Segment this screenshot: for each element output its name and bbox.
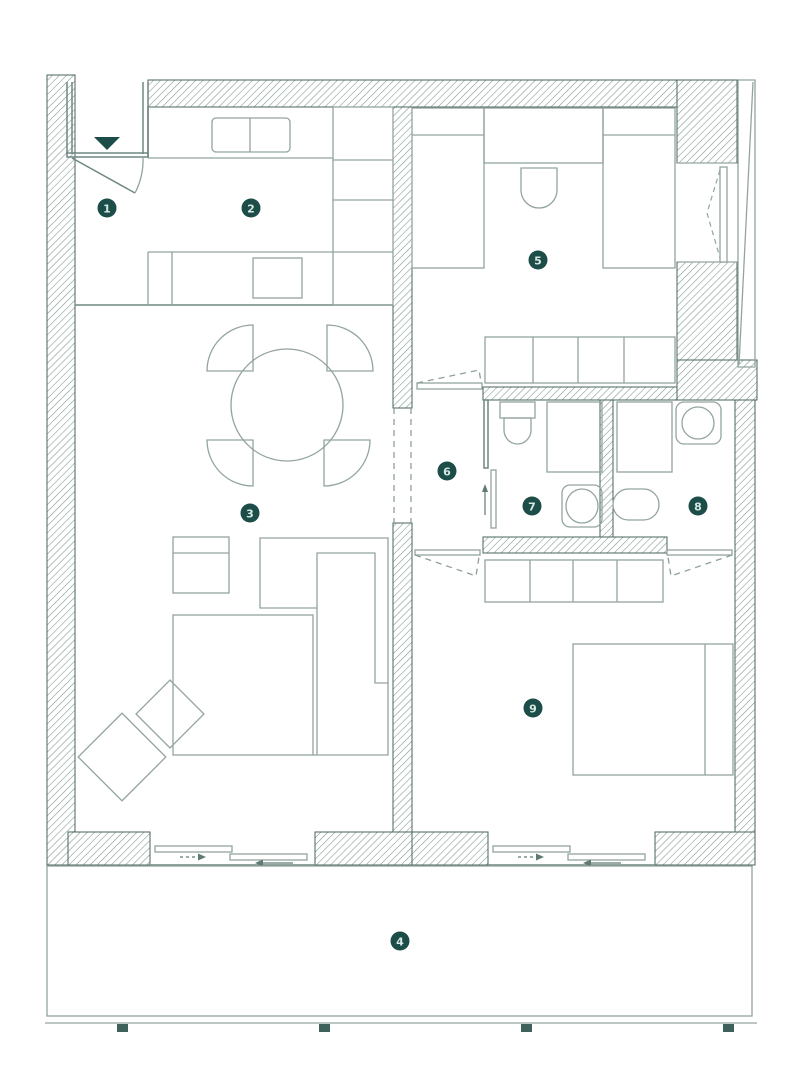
side-table <box>173 537 229 593</box>
room-badge-5-label: 5 <box>534 255 542 268</box>
room-badge-9-label: 9 <box>529 703 537 716</box>
entry-threshold <box>67 153 148 157</box>
kitchen-appliance <box>212 118 290 152</box>
toilet-tank-7 <box>500 402 535 418</box>
shower-7 <box>547 402 602 472</box>
angled-glazing-diagonal <box>739 82 753 365</box>
room-badge-4-label: 4 <box>396 936 404 949</box>
left-exterior-wall <box>47 75 75 865</box>
single-bed-left <box>412 108 484 268</box>
sliding-arrow-head-right-1 <box>536 854 544 861</box>
room-badge-4: 4 <box>391 932 410 951</box>
bathroom7-door-leaf <box>491 470 496 528</box>
corner-sofa <box>260 538 388 683</box>
room-badge-7-label: 7 <box>528 501 536 514</box>
wardrobe-room9 <box>485 560 663 602</box>
room9-furniture <box>485 560 733 775</box>
wall-above-room9 <box>483 537 667 553</box>
right-exterior-wall <box>735 400 755 865</box>
room9-door-swing-icon <box>415 555 479 576</box>
room-badge-8: 8 <box>689 497 708 516</box>
room-badge-7: 7 <box>523 497 542 516</box>
bathroom7-fixtures <box>500 402 602 527</box>
room9-door-leaf <box>415 550 480 555</box>
bathtub-8 <box>613 489 659 520</box>
sofa-footprint-edge <box>313 683 388 755</box>
entrance-arrow-icon <box>94 137 120 150</box>
railing-post-1 <box>117 1024 128 1032</box>
desk <box>484 108 603 163</box>
wardrobe-room5 <box>485 337 675 383</box>
bottom-wall-left-b <box>315 832 412 865</box>
bottom-wall-left-a <box>68 832 150 865</box>
sliding-door-left-panel-2 <box>230 854 307 860</box>
sliding-door-right-panel-1 <box>493 846 570 852</box>
dining-chair-se <box>324 440 370 486</box>
dining-chair-nw <box>207 325 253 371</box>
wall-below-room5 <box>483 387 677 400</box>
armchair <box>78 713 166 801</box>
railing-post-3 <box>521 1024 532 1032</box>
entrance-door-swing-icon <box>135 157 143 193</box>
washbasin-7-bowl <box>566 489 598 523</box>
rug <box>173 615 313 755</box>
top-wall <box>148 80 677 107</box>
bathroom7-door-arrowhead <box>482 484 488 492</box>
room-badge-2-label: 2 <box>247 203 255 216</box>
room-badge-9: 9 <box>524 699 543 718</box>
bottom-wall-right-a <box>412 832 488 865</box>
living-furniture <box>78 537 388 801</box>
room5-door-leaf <box>417 383 482 389</box>
railing-post-2 <box>319 1024 330 1032</box>
room-badge-5: 5 <box>529 251 548 270</box>
room-badge-3-label: 3 <box>246 508 254 521</box>
shower-8 <box>617 402 672 472</box>
dining-chair-ne <box>327 325 373 371</box>
dining-table <box>231 349 343 461</box>
entrance-door-leaf <box>72 158 135 193</box>
floor-plan-drawing: 1 2 3 4 5 6 7 8 <box>0 0 802 1080</box>
dining-furniture <box>207 325 373 486</box>
railing-post-4 <box>723 1024 734 1032</box>
washbasin-7-counter <box>562 485 602 527</box>
sliding-arrow-head-left-1 <box>198 854 206 861</box>
window-icon <box>720 167 727 262</box>
dining-chair-sw <box>207 440 253 486</box>
room5-door-swing-icon <box>417 370 481 383</box>
room-badge-1: 1 <box>98 199 117 218</box>
toilet-bowl-7 <box>504 418 531 444</box>
single-bed-right <box>603 108 675 268</box>
sliding-door-left-panel-1 <box>155 846 232 852</box>
desk-chair <box>521 168 557 208</box>
room-badge-1-label: 1 <box>103 203 111 216</box>
right-wall-below-window <box>677 262 737 370</box>
room-badge-2: 2 <box>242 199 261 218</box>
floor-plan-page: 1 2 3 4 5 6 7 8 <box>0 0 802 1080</box>
bathroom8-door-swing-icon <box>668 555 732 576</box>
room-badge-6: 6 <box>438 462 457 481</box>
room-badge-8-label: 8 <box>694 501 702 514</box>
kitchen-tall-units <box>333 107 393 305</box>
room-badge-6-label: 6 <box>443 466 451 479</box>
top-right-corner-wall <box>677 80 737 163</box>
right-corner-wall <box>677 360 757 400</box>
kitchen-furniture <box>148 107 393 305</box>
double-bed <box>573 644 733 775</box>
hall-bathroom-partition <box>484 400 488 468</box>
bathroom8-door-leaf <box>667 550 732 555</box>
room-badge-3: 3 <box>241 504 260 523</box>
central-wall-lower <box>393 523 412 832</box>
kitchen-sink <box>253 258 302 298</box>
central-wall-upper <box>393 107 412 408</box>
sliding-door-right-panel-2 <box>568 854 645 860</box>
washbasin-8-bowl <box>682 407 714 439</box>
bottom-wall-right-b <box>655 832 755 865</box>
window-casement-swing <box>707 170 720 258</box>
room5-furniture <box>412 108 675 383</box>
walls <box>47 75 757 865</box>
